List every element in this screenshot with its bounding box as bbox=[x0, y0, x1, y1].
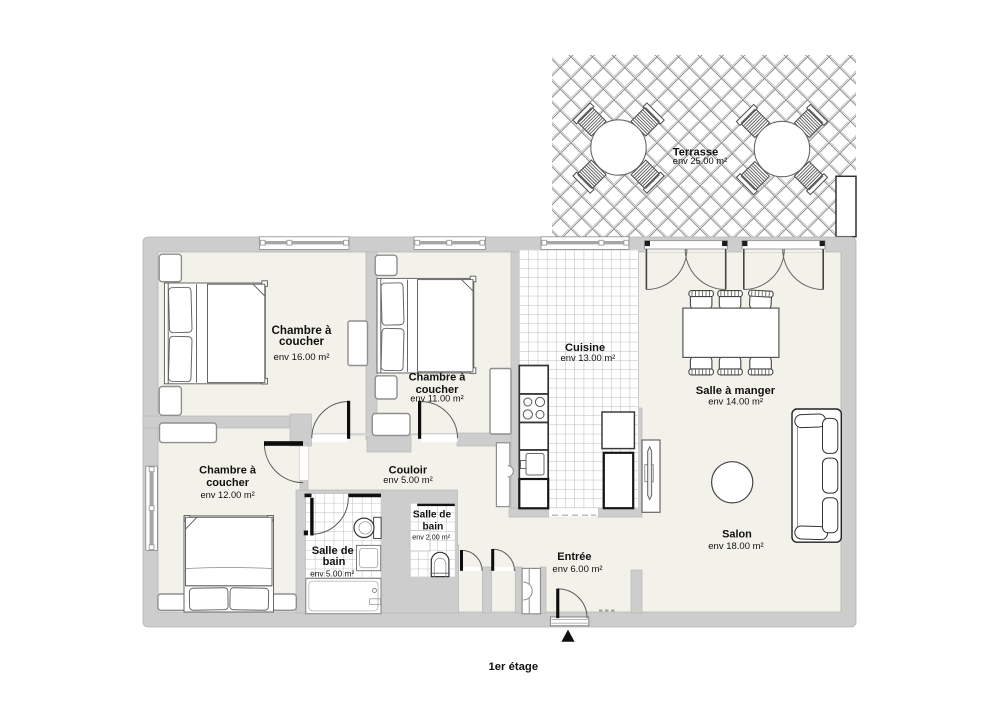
svg-text:bain: bain bbox=[423, 521, 444, 532]
svg-text:bain: bain bbox=[323, 556, 346, 568]
svg-text:coucher: coucher bbox=[279, 335, 325, 348]
svg-text:Chambre à: Chambre à bbox=[409, 371, 467, 383]
svg-text:env 11.00 m²: env 11.00 m² bbox=[410, 393, 464, 403]
svg-text:env 5.00 m²: env 5.00 m² bbox=[310, 568, 354, 578]
svg-text:env 14.00 m²: env 14.00 m² bbox=[708, 395, 763, 406]
svg-text:env 6.00 m²: env 6.00 m² bbox=[552, 564, 602, 575]
svg-text:env 13.00 m²: env 13.00 m² bbox=[561, 352, 616, 363]
svg-text:env 12.00 m²: env 12.00 m² bbox=[200, 490, 254, 500]
svg-text:Entrée: Entrée bbox=[557, 551, 591, 563]
svg-text:env 25.00 m²: env 25.00 m² bbox=[673, 156, 727, 166]
svg-text:env 16.00 m²: env 16.00 m² bbox=[274, 352, 331, 363]
svg-text:Chambre à: Chambre à bbox=[199, 465, 257, 477]
svg-text:env 2.00 m²: env 2.00 m² bbox=[412, 533, 451, 542]
svg-text:Salle de: Salle de bbox=[413, 510, 452, 521]
svg-text:coucher: coucher bbox=[206, 477, 250, 489]
svg-text:1er étage: 1er étage bbox=[488, 661, 538, 673]
svg-text:env 18.00 m²: env 18.00 m² bbox=[708, 541, 763, 552]
svg-text:Salon: Salon bbox=[722, 529, 752, 541]
svg-text:env 5.00 m²: env 5.00 m² bbox=[383, 474, 433, 485]
